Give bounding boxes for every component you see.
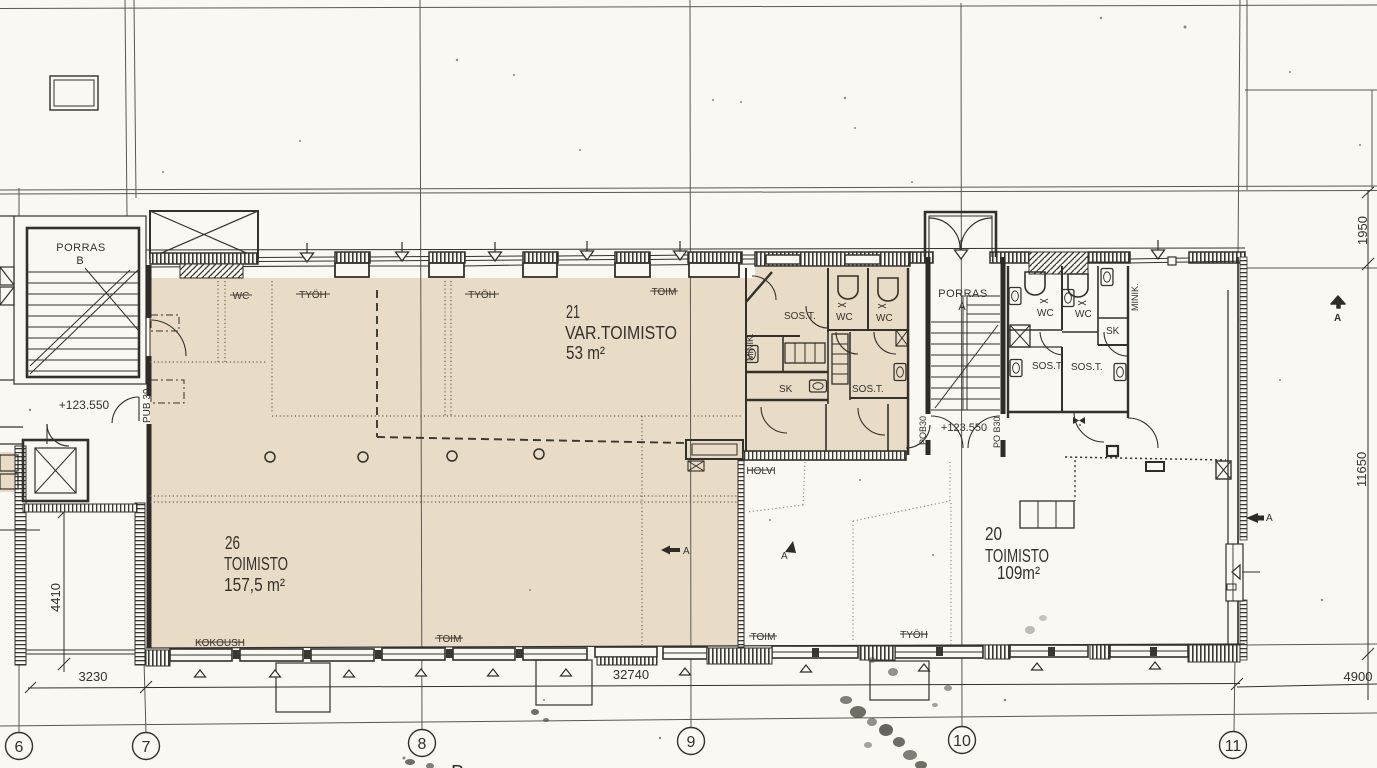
- svg-text:157,5 m²: 157,5 m²: [224, 575, 285, 595]
- svg-text:TOIM: TOIM: [652, 287, 677, 298]
- svg-text:21: 21: [566, 302, 580, 322]
- svg-text:PORRAS: PORRAS: [938, 288, 987, 300]
- svg-text:WC: WC: [876, 313, 893, 324]
- svg-text:MINIK.: MINIK.: [745, 333, 755, 361]
- svg-text:6: 6: [15, 739, 24, 756]
- svg-text:TYÖH: TYÖH: [299, 289, 327, 301]
- svg-text:20: 20: [985, 524, 1002, 544]
- svg-text:TOIMISTO: TOIMISTO: [224, 554, 288, 574]
- svg-text:POB30: POB30: [918, 416, 928, 445]
- svg-text:MINIK.: MINIK.: [1130, 283, 1140, 311]
- svg-text:11: 11: [1225, 738, 1242, 755]
- svg-text:PUB 30: PUB 30: [142, 388, 153, 423]
- svg-text:32740: 32740: [613, 667, 649, 682]
- svg-text:WC: WC: [1037, 308, 1054, 319]
- svg-text:SOS.T.: SOS.T.: [852, 384, 884, 395]
- svg-text:109m²: 109m²: [997, 563, 1040, 583]
- svg-text:9: 9: [687, 734, 696, 751]
- svg-text:A: A: [781, 551, 788, 562]
- svg-text:SOS.T.: SOS.T.: [784, 311, 816, 322]
- svg-text:26: 26: [225, 533, 240, 553]
- svg-text:3230: 3230: [79, 669, 108, 684]
- svg-text:SOS.T.: SOS.T.: [1071, 362, 1103, 373]
- svg-text:10: 10: [953, 733, 971, 750]
- svg-text:4410: 4410: [48, 583, 63, 612]
- svg-text:KOKOUSH: KOKOUSH: [195, 638, 245, 649]
- svg-text:8: 8: [418, 736, 427, 753]
- svg-text:4900: 4900: [1344, 669, 1373, 684]
- svg-text:PO B30: PO B30: [992, 416, 1002, 448]
- svg-text:11650: 11650: [1354, 452, 1369, 487]
- svg-text:SK: SK: [779, 384, 793, 395]
- svg-text:WC: WC: [233, 291, 250, 302]
- svg-text:TOIM: TOIM: [751, 632, 776, 643]
- svg-text:B: B: [76, 255, 83, 267]
- svg-text:+123.550: +123.550: [59, 398, 110, 412]
- svg-text:TYÖH: TYÖH: [468, 289, 496, 301]
- svg-text:A: A: [683, 546, 690, 557]
- svg-text:WC: WC: [836, 312, 853, 323]
- svg-text:HOLVI: HOLVI: [746, 466, 775, 477]
- svg-text:PORRAS: PORRAS: [56, 242, 105, 254]
- svg-text:VAR.TOIMISTO: VAR.TOIMISTO: [565, 323, 677, 343]
- svg-text:TYÖH: TYÖH: [900, 629, 928, 641]
- svg-text:7: 7: [142, 739, 151, 756]
- svg-text:1950: 1950: [1355, 216, 1370, 245]
- svg-text:A: A: [958, 301, 966, 313]
- svg-text:A: A: [1334, 313, 1341, 324]
- svg-text:B: B: [451, 762, 464, 768]
- svg-text:SOS.T.: SOS.T.: [1032, 361, 1064, 372]
- svg-text:+123.550: +123.550: [941, 422, 987, 434]
- svg-text:WC: WC: [1075, 309, 1092, 320]
- svg-text:A: A: [1266, 513, 1273, 524]
- svg-text:53 m²: 53 m²: [566, 343, 605, 363]
- svg-text:TOIM: TOIM: [437, 634, 462, 645]
- svg-text:SK: SK: [1106, 326, 1120, 337]
